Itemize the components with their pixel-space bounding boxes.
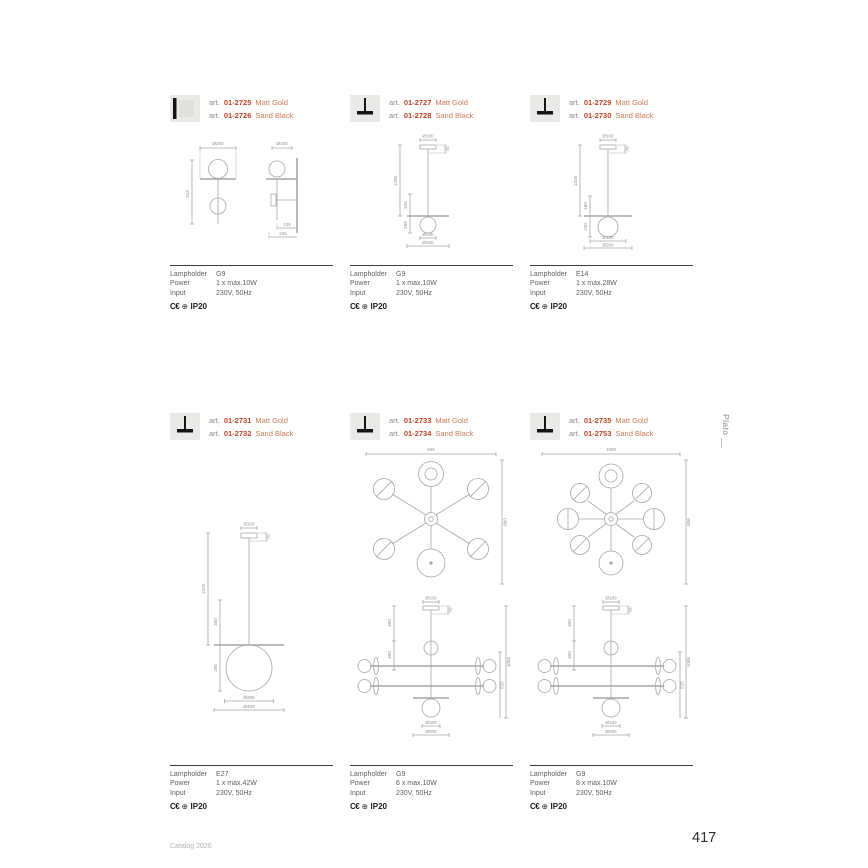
dim-label: 70 [445, 146, 450, 152]
dim-label: 300 [387, 651, 392, 659]
ip-rating: IP20 [191, 802, 207, 811]
article-code: 01-2727 [404, 98, 432, 107]
page-number: 417 [692, 830, 716, 846]
certification-line: C€⊕IP20 [350, 802, 513, 811]
technical-drawing-plan-view: 1060 806 [530, 444, 692, 592]
dim-label: 300 [567, 619, 572, 627]
dim-label: 300 [213, 618, 218, 626]
ip-rating: IP20 [551, 302, 567, 311]
finish-name: Sand Black [255, 429, 293, 438]
dim-label: 300 [387, 619, 392, 627]
spec-row-power: Power1 x max.10W [350, 279, 513, 289]
dim-label: 1325 [201, 583, 206, 594]
spec-value: G9 [396, 270, 513, 280]
dim-label: 1285 [393, 175, 398, 186]
dim-label: 860 [503, 518, 508, 526]
spec-table: LampholderG9 Power8 x max.10W Input230V,… [530, 765, 693, 812]
ip-rating: IP20 [371, 802, 387, 811]
dim-label: 300 [567, 651, 572, 659]
drawing-area: Ø100 70 1325 160 100 Ø150 Ø200 [530, 122, 693, 265]
spec-value: 1 x max.10W [216, 279, 333, 289]
spec-value: 6 x max.10W [396, 779, 513, 789]
spec-table: LampholderG9 Power6 x max.10W Input230V,… [350, 765, 513, 812]
drawing-area: Ø200 324 Ø100 125 225 [170, 122, 333, 265]
dim-label: 70 [625, 146, 630, 152]
dim-label: 225 [279, 231, 287, 236]
technical-drawing-wall-lamp: Ø200 324 Ø100 125 225 [170, 138, 332, 242]
dim-label: 160 [583, 202, 588, 210]
product-card-01-2731: art.01-2731Matt Gold art.01-2732Sand Bla… [170, 413, 333, 811]
spec-value: G9 [576, 770, 693, 780]
product-card-01-2727: art.01-2727Matt Gold art.01-2728Sand Bla… [350, 95, 513, 311]
spec-value: 8 x max.10W [576, 779, 693, 789]
dim-label: Ø200 [605, 729, 617, 734]
dim-label: Ø200 [602, 243, 614, 248]
dim-label: Ø100 [425, 596, 437, 601]
ce-mark: C€ [170, 302, 179, 311]
finish-name: Matt Gold [435, 416, 468, 425]
spec-row-power: Power1 x max.42W [170, 779, 333, 789]
finish-name: Matt Gold [615, 416, 648, 425]
dim-label: Ø400 [243, 704, 255, 709]
variant-line: art.01-2725Matt Gold [209, 96, 293, 109]
certification-line: C€⊕IP20 [350, 302, 513, 311]
article-code: 01-2733 [404, 416, 432, 425]
drawing-area: 1060 806 Ø100 70 300 300 106 [530, 440, 693, 765]
ce-mark: C€ [170, 802, 179, 811]
pendant-thumbnail-icon [530, 413, 560, 440]
globe-cert-icon: ⊕ [542, 803, 548, 811]
dim-label: 525 [500, 681, 505, 689]
technical-drawing-pendant: Ø100 70 1285 320 185 Ø100 Ø200 [350, 132, 512, 250]
article-code: 01-2725 [224, 98, 252, 107]
dim-label: 70 [266, 534, 271, 540]
finish-name: Sand Black [615, 429, 653, 438]
variant-line: art.01-2727Matt Gold [389, 96, 473, 109]
ce-mark: C€ [530, 302, 539, 311]
spec-table: LampholderE27 Power1 x max.42W Input230V… [170, 765, 333, 812]
drawing-area: 945 860 Ø100 70 300 300 1065 [350, 440, 513, 765]
variant-line: art.01-2728Sand Black [389, 109, 473, 122]
pendant-thumbnail-icon [170, 413, 200, 440]
dim-label: Ø100 [422, 134, 434, 139]
certification-line: C€⊕IP20 [170, 302, 333, 311]
spec-row-lampholder: LampholderG9 [170, 270, 333, 280]
variant-line: art.01-2735Matt Gold [569, 414, 653, 427]
spec-row-input: Input230V, 50Hz [350, 789, 513, 799]
globe-cert-icon: ⊕ [542, 303, 548, 311]
technical-drawing-pendant: Ø100 70 1325 160 100 Ø150 Ø200 [530, 132, 692, 250]
dim-label: 806 [686, 518, 691, 526]
article-code: 01-2735 [584, 416, 612, 425]
article-code: 01-2730 [584, 111, 612, 120]
variant-list: art.01-2735Matt Gold art.01-2753Sand Bla… [569, 413, 653, 440]
product-card-01-2735: art.01-2735Matt Gold art.01-2753Sand Bla… [530, 413, 693, 811]
dim-label: Ø200 [422, 240, 434, 245]
spec-table: LampholderE14 Power1 x max.28W Input230V… [530, 265, 693, 312]
spec-value: 1 x max.42W [216, 779, 333, 789]
variant-line: art.01-2753Sand Black [569, 427, 653, 440]
spec-row-input: Input230V, 50Hz [530, 789, 693, 799]
ce-mark: C€ [350, 302, 359, 311]
spec-value: 1 x max.28W [576, 279, 693, 289]
pendant-thumbnail-icon [350, 95, 380, 122]
certification-line: C€⊕IP20 [530, 302, 693, 311]
dim-label: Ø200 [212, 141, 224, 146]
globe-cert-icon: ⊕ [182, 803, 188, 811]
dim-label: 70 [628, 607, 633, 613]
variant-list: art.01-2731Matt Gold art.01-2732Sand Bla… [209, 413, 293, 440]
spec-row-power: Power8 x max.10W [530, 779, 693, 789]
product-header: art.01-2731Matt Gold art.01-2732Sand Bla… [170, 413, 333, 440]
product-header: art.01-2729Matt Gold art.01-2730Sand Bla… [530, 95, 693, 122]
spec-row-lampholder: LampholderE14 [530, 270, 693, 280]
spec-table: LampholderG9 Power1 x max.10W Input230V,… [170, 265, 333, 312]
spec-row-power: Power1 x max.28W [530, 279, 693, 289]
spec-value: 230V, 50Hz [216, 789, 333, 799]
spec-row-input: Input230V, 50Hz [170, 789, 333, 799]
dim-label: 1325 [573, 175, 578, 186]
variant-list: art.01-2727Matt Gold art.01-2728Sand Bla… [389, 95, 473, 122]
dim-label: Ø100 [605, 720, 617, 725]
dim-label: Ø100 [425, 720, 437, 725]
spec-row-lampholder: LampholderG9 [350, 770, 513, 780]
spec-row-input: Input230V, 50Hz [170, 289, 333, 299]
product-header: art.01-2725Matt Gold art.01-2726Sand Bla… [170, 95, 333, 122]
ip-rating: IP20 [551, 802, 567, 811]
dim-label: 70 [448, 607, 453, 613]
product-header: art.01-2727Matt Gold art.01-2728Sand Bla… [350, 95, 513, 122]
catalog-footer-label: Catalog 2026 [170, 843, 212, 850]
finish-name: Matt Gold [255, 98, 288, 107]
dim-label: Ø100 [276, 141, 288, 146]
finish-name: Matt Gold [615, 98, 648, 107]
dim-label: Ø100 [243, 522, 255, 527]
collection-name-side-label: Plato __ [721, 414, 731, 448]
variant-line: art.01-2726Sand Black [209, 109, 293, 122]
dim-label: 100 [583, 223, 588, 231]
spec-row-power: Power6 x max.10W [350, 779, 513, 789]
dim-label: 320 [403, 201, 408, 209]
finish-name: Sand Black [435, 429, 473, 438]
dim-label: 945 [427, 447, 435, 452]
spec-row-lampholder: LampholderG9 [350, 270, 513, 280]
spec-row-lampholder: LampholderE27 [170, 770, 333, 780]
variant-line: art.01-2734Sand Black [389, 427, 473, 440]
spec-value: 230V, 50Hz [396, 289, 513, 299]
dim-label: 1060 [606, 447, 617, 452]
variant-line: art.01-2732Sand Black [209, 427, 293, 440]
spec-value: 230V, 50Hz [576, 289, 693, 299]
variant-list: art.01-2725Matt Gold art.01-2726Sand Bla… [209, 95, 293, 122]
dim-label: Ø280 [243, 695, 255, 700]
spec-value: G9 [396, 770, 513, 780]
article-code: 01-2732 [224, 429, 252, 438]
spec-table: LampholderG9 Power1 x max.10W Input230V,… [350, 265, 513, 312]
ip-rating: IP20 [371, 302, 387, 311]
product-header: art.01-2735Matt Gold art.01-2753Sand Bla… [530, 413, 693, 440]
dim-label: 125 [283, 222, 291, 227]
ce-mark: C€ [350, 802, 359, 811]
dim-label: 525 [680, 681, 685, 689]
product-header: art.01-2733Matt Gold art.01-2734Sand Bla… [350, 413, 513, 440]
product-card-01-2725: art.01-2725Matt Gold art.01-2726Sand Bla… [170, 95, 333, 311]
spec-row-input: Input230V, 50Hz [530, 289, 693, 299]
dim-label: 285 [213, 664, 218, 672]
dim-label: Ø100 [605, 596, 617, 601]
technical-drawing-plan-view: 945 860 [350, 444, 512, 592]
technical-drawing-side-view: Ø100 70 300 300 1065 525 Ø100 Ø2 [350, 594, 512, 746]
certification-line: C€⊕IP20 [170, 802, 333, 811]
ce-mark: C€ [530, 802, 539, 811]
certification-line: C€⊕IP20 [530, 802, 693, 811]
variant-line: art.01-2731Matt Gold [209, 414, 293, 427]
article-code: 01-2731 [224, 416, 252, 425]
finish-name: Sand Black [435, 111, 473, 120]
article-code: 01-2728 [404, 111, 432, 120]
variant-line: art.01-2729Matt Gold [569, 96, 653, 109]
spec-value: 230V, 50Hz [396, 789, 513, 799]
drawing-area: Ø100 70 1325 300 285 Ø280 Ø400 [170, 440, 333, 765]
spec-row-input: Input230V, 50Hz [350, 289, 513, 299]
dim-label: Ø100 [602, 134, 614, 139]
dim-label: Ø200 [425, 729, 437, 734]
technical-drawing-side-view: Ø100 70 300 300 1065 525 Ø100 Ø2 [530, 594, 692, 746]
variant-list: art.01-2729Matt Gold art.01-2730Sand Bla… [569, 95, 653, 122]
globe-cert-icon: ⊕ [182, 303, 188, 311]
ip-rating: IP20 [191, 302, 207, 311]
globe-cert-icon: ⊕ [362, 803, 368, 811]
dim-label: 1065 [686, 656, 691, 667]
dim-label: Ø100 [422, 232, 434, 237]
spec-value: E14 [576, 270, 693, 280]
pendant-thumbnail-icon [530, 95, 560, 122]
spec-value: G9 [216, 270, 333, 280]
spec-value: 1 x max.10W [396, 279, 513, 289]
article-code: 01-2729 [584, 98, 612, 107]
wall-lamp-thumbnail-icon [170, 95, 200, 122]
product-card-01-2733: art.01-2733Matt Gold art.01-2734Sand Bla… [350, 413, 513, 811]
globe-cert-icon: ⊕ [362, 303, 368, 311]
variant-line: art.01-2733Matt Gold [389, 414, 473, 427]
dim-label: 185 [403, 221, 408, 229]
pendant-thumbnail-icon [350, 413, 380, 440]
variant-line: art.01-2730Sand Black [569, 109, 653, 122]
spec-row-lampholder: LampholderG9 [530, 770, 693, 780]
finish-name: Sand Black [255, 111, 293, 120]
article-code: 01-2753 [584, 429, 612, 438]
variant-list: art.01-2733Matt Gold art.01-2734Sand Bla… [389, 413, 473, 440]
article-code: 01-2726 [224, 111, 252, 120]
drawing-area: Ø100 70 1285 320 185 Ø100 Ø200 [350, 122, 513, 265]
article-code: 01-2734 [404, 429, 432, 438]
spec-value: 230V, 50Hz [576, 789, 693, 799]
finish-name: Sand Black [615, 111, 653, 120]
spec-value: 230V, 50Hz [216, 289, 333, 299]
finish-name: Matt Gold [435, 98, 468, 107]
product-card-01-2729: art.01-2729Matt Gold art.01-2730Sand Bla… [530, 95, 693, 311]
finish-name: Matt Gold [255, 416, 288, 425]
technical-drawing-pendant-large: Ø100 70 1325 300 285 Ø280 Ø400 [170, 440, 332, 740]
dim-label: 1065 [506, 656, 511, 667]
spec-row-power: Power1 x max.10W [170, 279, 333, 289]
spec-value: E27 [216, 770, 333, 780]
dim-label: 324 [185, 190, 190, 198]
dim-label: Ø150 [602, 235, 614, 240]
